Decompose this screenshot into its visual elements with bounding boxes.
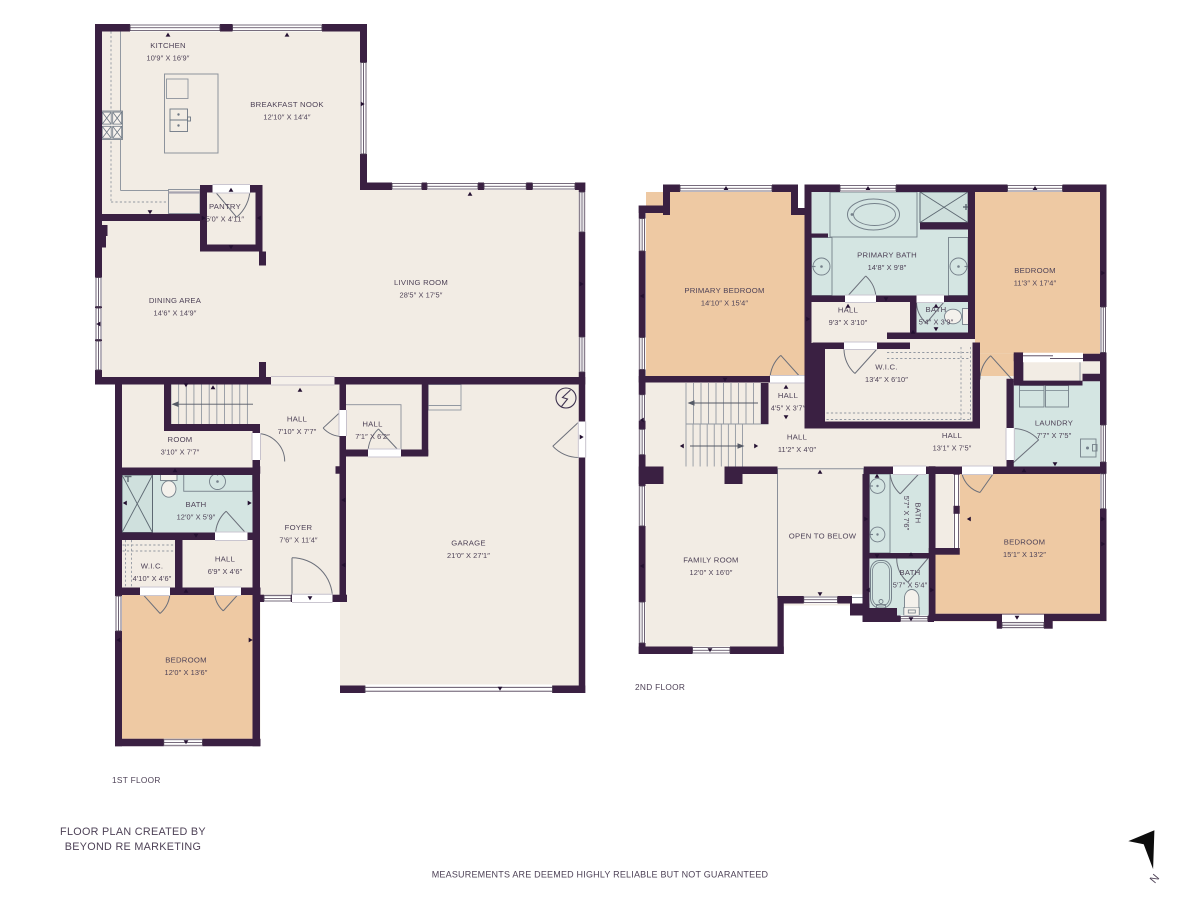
svg-text:21′0″ X 27′1″: 21′0″ X 27′1″	[447, 551, 490, 560]
svg-text:BEDROOM: BEDROOM	[1014, 266, 1055, 275]
svg-text:28′5″ X 17′5″: 28′5″ X 17′5″	[399, 291, 442, 300]
svg-text:DINING AREA: DINING AREA	[149, 296, 202, 305]
svg-text:GARAGE: GARAGE	[451, 539, 485, 548]
svg-text:PRIMARY BATH: PRIMARY BATH	[857, 251, 917, 260]
svg-text:5′7″ X 7′6″: 5′7″ X 7′6″	[902, 496, 911, 531]
svg-text:HALL: HALL	[215, 555, 236, 564]
svg-text:FAMILY ROOM: FAMILY ROOM	[683, 556, 738, 565]
svg-text:12′10″ X 14′4″: 12′10″ X 14′4″	[263, 113, 310, 122]
svg-text:ROOM: ROOM	[168, 435, 193, 444]
svg-text:HALL: HALL	[778, 391, 799, 400]
svg-text:14′8″ X 9′8″: 14′8″ X 9′8″	[868, 263, 907, 272]
svg-text:7′7″ X 7′5″: 7′7″ X 7′5″	[1037, 431, 1072, 440]
svg-text:HALL: HALL	[287, 415, 308, 424]
svg-text:11′3″ X 17′4″: 11′3″ X 17′4″	[1014, 279, 1057, 288]
svg-text:13′1″ X 7′5″: 13′1″ X 7′5″	[933, 444, 972, 453]
svg-text:BATH: BATH	[186, 500, 207, 509]
svg-text:W.I.C.: W.I.C.	[875, 363, 897, 372]
svg-text:1ST FLOOR: 1ST FLOOR	[112, 775, 161, 785]
svg-text:OPEN TO BELOW: OPEN TO BELOW	[789, 532, 857, 541]
svg-text:13′4″ X 6′10″: 13′4″ X 6′10″	[865, 375, 908, 384]
svg-text:PANTRY: PANTRY	[209, 202, 241, 211]
svg-text:BATH: BATH	[914, 503, 923, 524]
svg-text:FOYER: FOYER	[285, 523, 313, 532]
svg-text:5′4″ X 3′9″: 5′4″ X 3′9″	[919, 318, 954, 327]
svg-text:5′0″ X 4′11″: 5′0″ X 4′11″	[206, 215, 245, 224]
svg-text:MEASUREMENTS ARE DEEMED HIGHLY: MEASUREMENTS ARE DEEMED HIGHLY RELIABLE …	[432, 870, 769, 880]
svg-text:9′3″ X 3′10″: 9′3″ X 3′10″	[829, 318, 868, 327]
svg-text:PRIMARY BEDROOM: PRIMARY BEDROOM	[684, 286, 764, 295]
svg-text:4′5″ X 3′7″: 4′5″ X 3′7″	[771, 404, 806, 413]
svg-text:2ND FLOOR: 2ND FLOOR	[635, 682, 685, 692]
svg-text:11′2″ X 4′0″: 11′2″ X 4′0″	[778, 445, 817, 454]
svg-text:BEYOND RE MARKETING: BEYOND RE MARKETING	[65, 841, 201, 853]
svg-text:14′6″ X 14′9″: 14′6″ X 14′9″	[153, 309, 196, 318]
svg-text:HALL: HALL	[942, 431, 963, 440]
svg-text:3′10″ X 7′7″: 3′10″ X 7′7″	[161, 448, 200, 457]
svg-text:FLOOR PLAN CREATED BY: FLOOR PLAN CREATED BY	[60, 826, 206, 838]
svg-text:W.I.C.: W.I.C.	[141, 562, 163, 571]
svg-text:HALL: HALL	[362, 420, 383, 429]
svg-text:12′0″ X 5′9″: 12′0″ X 5′9″	[177, 513, 216, 522]
svg-text:12′0″ X 13′6″: 12′0″ X 13′6″	[164, 668, 207, 677]
svg-text:KITCHEN: KITCHEN	[150, 41, 186, 50]
svg-text:7′1″ X 6′2″: 7′1″ X 6′2″	[355, 432, 390, 441]
svg-text:5′7″ X 5′4″: 5′7″ X 5′4″	[893, 581, 928, 590]
svg-text:HALL: HALL	[787, 433, 808, 442]
svg-text:BEDROOM: BEDROOM	[1004, 538, 1045, 547]
svg-text:10′9″ X 16′9″: 10′9″ X 16′9″	[146, 54, 189, 63]
svg-text:15′1″ X 13′2″: 15′1″ X 13′2″	[1003, 550, 1046, 559]
svg-text:LAUNDRY: LAUNDRY	[1035, 419, 1073, 428]
svg-text:6′9″ X 4′6″: 6′9″ X 4′6″	[208, 567, 243, 576]
svg-text:7′10″ X 7′7″: 7′10″ X 7′7″	[278, 427, 317, 436]
svg-text:14′10″ X 15′4″: 14′10″ X 15′4″	[701, 299, 748, 308]
svg-text:BEDROOM: BEDROOM	[165, 656, 206, 665]
svg-text:LIVING ROOM: LIVING ROOM	[394, 278, 448, 287]
svg-text:12′0″ X 16′0″: 12′0″ X 16′0″	[689, 568, 732, 577]
svg-text:BREAKFAST NOOK: BREAKFAST NOOK	[250, 100, 324, 109]
svg-text:4′10″ X 4′6″: 4′10″ X 4′6″	[133, 574, 172, 583]
svg-text:BATH: BATH	[900, 568, 921, 577]
svg-text:7′6″ X 11′4″: 7′6″ X 11′4″	[279, 536, 318, 545]
